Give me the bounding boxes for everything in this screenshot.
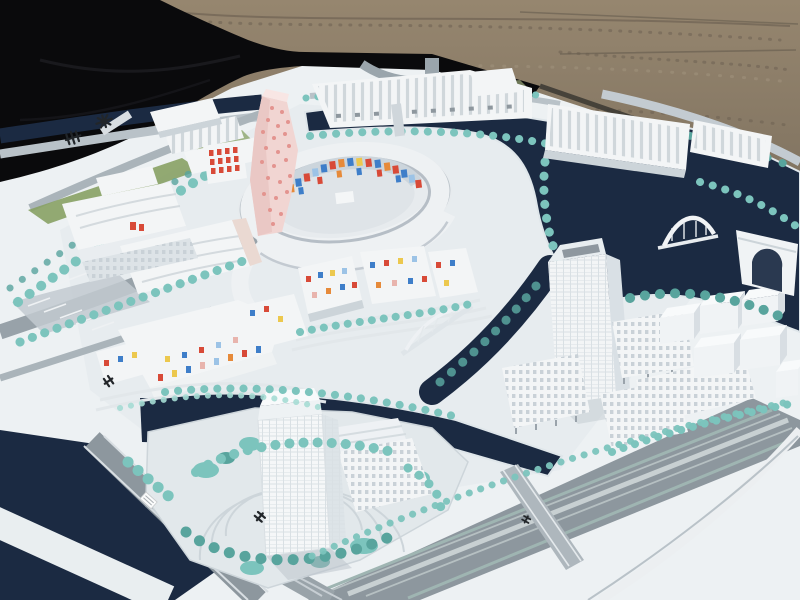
facade <box>203 140 247 184</box>
hall-roofbox <box>470 68 520 96</box>
block <box>360 246 436 304</box>
tower-grid <box>258 414 330 556</box>
small-bridge-north <box>396 104 400 136</box>
red-accent <box>130 222 136 230</box>
red-accent <box>139 224 144 231</box>
photo-architectural-model: Architectural scale model of a canal-sid… <box>0 0 800 600</box>
red-grid-building <box>203 140 247 184</box>
model-photo-illustration: Architectural scale model of a canal-sid… <box>0 0 800 600</box>
courtyard-pavilion <box>335 191 354 204</box>
